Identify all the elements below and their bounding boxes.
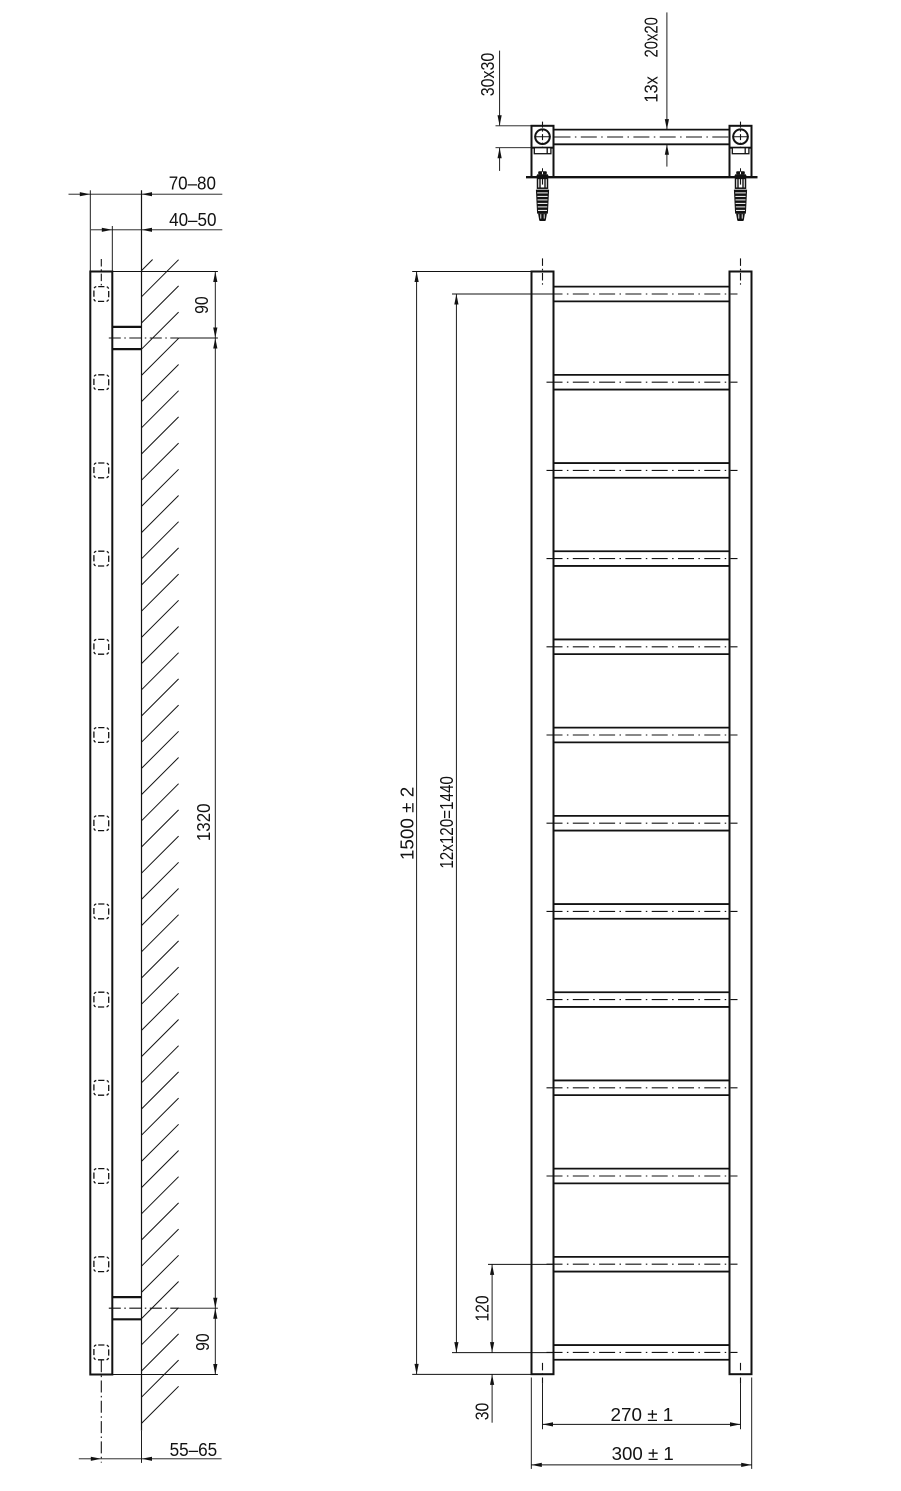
svg-text:30x30: 30x30 xyxy=(477,53,498,97)
svg-text:90: 90 xyxy=(192,1333,213,1351)
svg-text:270 ± 1: 270 ± 1 xyxy=(611,1404,674,1425)
svg-text:1320: 1320 xyxy=(193,804,214,842)
svg-text:1500 ± 2: 1500 ± 2 xyxy=(396,787,417,860)
svg-text:20x20: 20x20 xyxy=(640,17,661,57)
svg-text:300 ± 1: 300 ± 1 xyxy=(612,1443,674,1464)
svg-text:55–65: 55–65 xyxy=(170,1439,218,1460)
svg-text:12x120=1440: 12x120=1440 xyxy=(436,776,457,869)
svg-text:120: 120 xyxy=(472,1296,493,1322)
svg-text:30: 30 xyxy=(472,1403,493,1421)
svg-text:90: 90 xyxy=(191,296,212,314)
svg-text:40–50: 40–50 xyxy=(169,209,216,230)
svg-text:13x: 13x xyxy=(640,76,661,103)
svg-text:70–80: 70–80 xyxy=(169,172,216,193)
